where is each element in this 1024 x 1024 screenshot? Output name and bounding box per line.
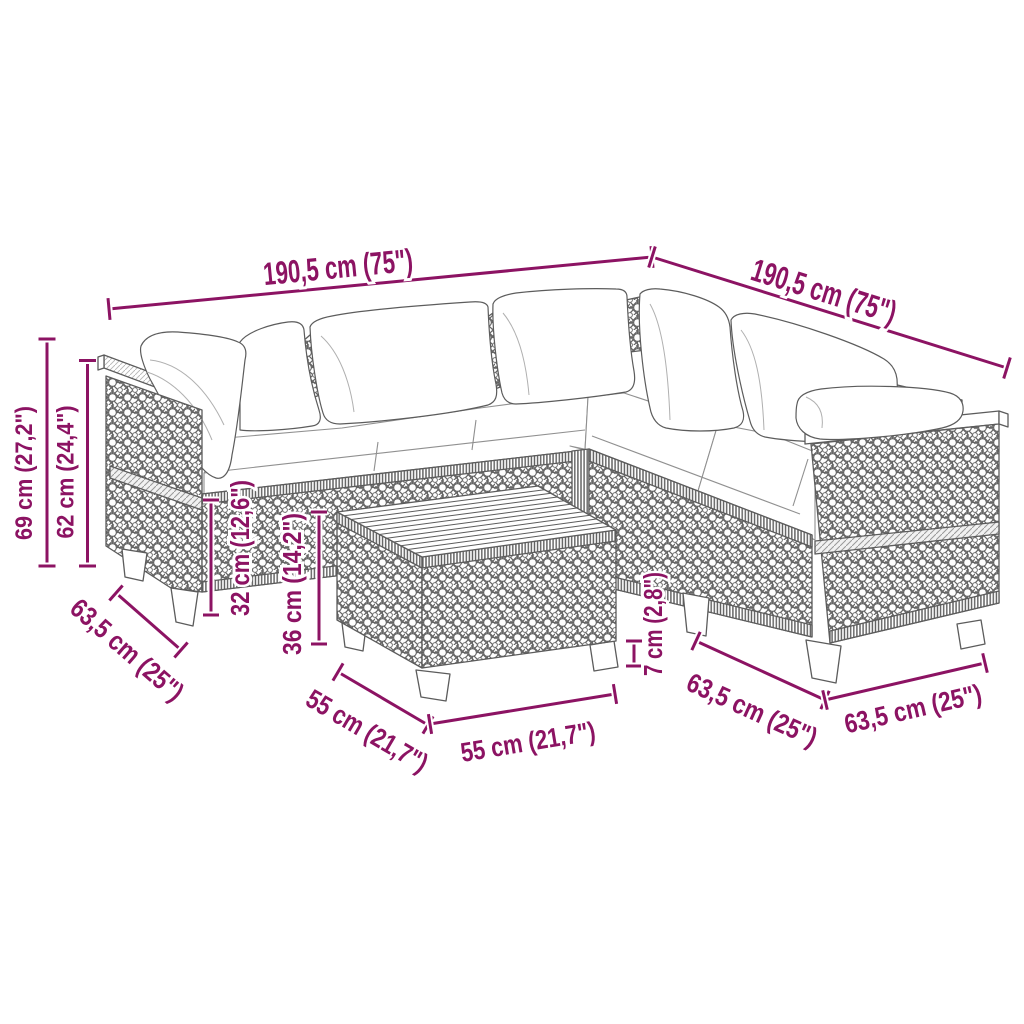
svg-text:7 cm (2,8"): 7 cm (2,8") bbox=[638, 572, 668, 676]
svg-text:62 cm (24,4"): 62 cm (24,4") bbox=[53, 406, 80, 539]
svg-text:69 cm (27,2"): 69 cm (27,2") bbox=[11, 406, 38, 540]
svg-text:32 cm (12,6"): 32 cm (12,6") bbox=[225, 480, 255, 616]
svg-text:36 cm (14,2"): 36 cm (14,2") bbox=[277, 513, 307, 655]
